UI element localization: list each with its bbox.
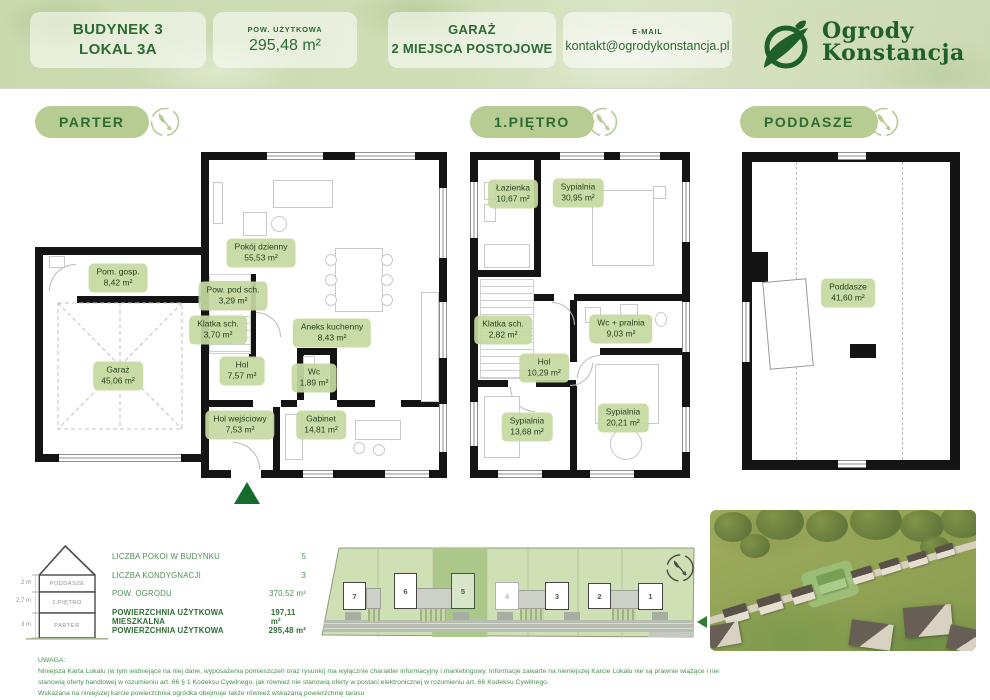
- siteplan-house-4: 4: [495, 582, 519, 610]
- foreground-house: [903, 604, 953, 638]
- bathtub: [484, 244, 530, 268]
- stat-label: POWIERZCHNIA UŻYTKOWA: [112, 626, 224, 635]
- door-arc: [233, 442, 260, 469]
- desk: [355, 420, 401, 440]
- header-box-garage: GARAŻ 2 MIEJSCA POSTOJOWE: [388, 12, 556, 68]
- room-label: Aneks kuchenny8,43 m²: [293, 319, 371, 348]
- door-arc: [49, 264, 76, 291]
- window: [439, 404, 447, 452]
- rendered-house: [850, 565, 874, 585]
- rendered-house: [756, 593, 784, 615]
- section-floor-label: PARTER: [54, 623, 79, 629]
- siteplan-pad: [345, 612, 361, 620]
- stat-value: 5: [301, 552, 306, 561]
- parking-spots-label: 2 MIEJSCA POSTOJOWE: [391, 40, 552, 59]
- chair: [325, 294, 337, 306]
- nightstand: [653, 186, 666, 199]
- window: [590, 470, 634, 478]
- window: [385, 470, 429, 478]
- chair: [381, 294, 393, 306]
- site-plan: 7 6 5 4 3 2 1: [312, 546, 712, 646]
- siteplan-pad: [497, 612, 513, 620]
- window: [355, 152, 415, 160]
- siteplan-pad: [564, 612, 580, 620]
- chair: [353, 442, 365, 454]
- usable-area-value: 295,48 m²: [249, 37, 321, 55]
- room-label: Garaż45,06 m²: [93, 362, 143, 391]
- tree: [940, 510, 976, 538]
- section-floor-label: 1.PIĘTRO: [52, 600, 82, 606]
- rug: [610, 428, 642, 460]
- siteplan-driveway: [368, 607, 380, 621]
- coffee-table: [271, 216, 287, 232]
- room-label: Pow. pod sch.3,29 m²: [199, 282, 268, 311]
- wall: [574, 294, 682, 301]
- floor-height-label: 3 m: [21, 622, 31, 628]
- siteplan-house-7: 7: [343, 582, 366, 610]
- tree: [850, 510, 902, 540]
- window: [470, 402, 478, 446]
- compass-icon: [866, 103, 902, 141]
- siteplan-pad: [652, 612, 668, 620]
- siteplan-garage: [415, 588, 453, 609]
- floor-plan-pietro: Łazienka10,67 m² Sypialnia30,95 m² Klatk…: [470, 152, 690, 478]
- floor-height-label: 2 m: [21, 580, 31, 586]
- tree: [740, 534, 770, 558]
- siteplan-house-2: 2: [588, 583, 611, 609]
- wall: [570, 386, 577, 470]
- door-arc: [570, 363, 593, 386]
- window: [682, 302, 690, 352]
- rendered-house: [879, 557, 902, 575]
- siteplan-house-6: 6: [394, 573, 417, 609]
- window: [742, 302, 750, 362]
- logo-icon: [757, 13, 817, 75]
- window: [470, 182, 478, 238]
- karta-lokalu-page: BUDYNEK 3 LOKAL 3A POW. UŻYTKOWA 295,48 …: [0, 0, 990, 700]
- usable-area-label: POW. UŻYTKOWA: [248, 25, 323, 34]
- room-label: Wc1,89 m²: [292, 364, 337, 393]
- chair: [325, 254, 337, 266]
- siteplan-driveway: [420, 607, 446, 621]
- note-line: Wskazana na niniejszej karcie powierzchn…: [38, 689, 968, 700]
- entrance-door-gap: [231, 470, 261, 478]
- window: [682, 182, 690, 242]
- room-label: Hol wejściowy7,53 m²: [205, 411, 274, 440]
- entrance-marker: [234, 482, 260, 504]
- toilet: [655, 312, 667, 327]
- siteplan-house-1: 1: [638, 583, 663, 610]
- tv-cabinet: [213, 182, 223, 224]
- floor-height-label: 2,7 m: [16, 598, 31, 604]
- window: [498, 470, 542, 478]
- window: [838, 460, 866, 468]
- stat-label: POWIERZCHNIA UŻYTKOWA MIESZKALNA: [112, 608, 271, 626]
- armchair: [243, 212, 267, 236]
- window: [682, 407, 690, 452]
- wall: [570, 348, 577, 355]
- foreground-house: [848, 619, 893, 651]
- wall: [35, 247, 205, 255]
- wall: [35, 247, 43, 462]
- window: [439, 302, 447, 358]
- sofa: [273, 180, 333, 208]
- garage-label: GARAŻ: [448, 21, 496, 40]
- stat-label: LICZBA KONDYGNACJI: [112, 571, 201, 580]
- chimney: [850, 344, 876, 358]
- roof-slope-line: [902, 162, 903, 460]
- room-label: Hol10,29 m²: [519, 354, 569, 383]
- logo-wordmark: Ogrody Konstancja: [822, 20, 965, 65]
- floor-plan-poddasze: Poddasze41,60 m²: [742, 152, 960, 470]
- wall: [534, 160, 541, 277]
- email-address[interactable]: kontakt@ogrodykonstancja.pl: [565, 39, 729, 53]
- siteplan-house-3: 3: [545, 582, 569, 610]
- siteplan-garage: [609, 590, 639, 609]
- chair: [325, 274, 337, 286]
- header-box-email: E-MAIL kontakt@ogrodykonstancja.pl: [563, 12, 732, 68]
- foreground-house: [710, 621, 742, 649]
- stat-row: POWIERZCHNIA UŻYTKOWA MIESZKALNA 197,11 …: [112, 608, 306, 627]
- siteplan-pad: [453, 612, 469, 620]
- section-title-poddasze: PODDASZE: [740, 106, 878, 138]
- wall: [281, 400, 297, 407]
- room-label: Pokój dzienny55,53 m²: [227, 239, 296, 268]
- tree: [806, 510, 848, 542]
- window: [439, 188, 447, 258]
- summary-stats: LICZBA POKOI W BUDYNKU 5 LICZBA KONDYGNA…: [112, 552, 306, 645]
- window: [838, 152, 866, 160]
- siteplan-house-5-selected: 5: [451, 573, 475, 609]
- window: [303, 470, 333, 478]
- section-floor-label: PODDASZE: [49, 581, 84, 587]
- wall: [752, 252, 768, 282]
- room-label: Wc + pralnia9,03 m²: [589, 315, 652, 344]
- compass-icon: [585, 103, 621, 141]
- building-number: BUDYNEK 3: [73, 20, 163, 40]
- stat-label: POW. OGRODU: [112, 589, 172, 598]
- stat-row: LICZBA POKOI W BUDYNKU 5: [112, 552, 306, 571]
- stat-label: LICZBA POKOI W BUDYNKU: [112, 552, 220, 561]
- aerial-photo: [710, 510, 976, 651]
- chair: [373, 444, 385, 456]
- window: [560, 152, 604, 160]
- floor-plan-parter: Pokój dzienny55,53 m² Pow. pod sch.3,29 …: [35, 152, 447, 482]
- window: [267, 152, 323, 160]
- garage-door: [59, 454, 181, 462]
- room-label: Pom. gosp.8,42 m²: [89, 264, 148, 293]
- dining-table: [335, 248, 383, 312]
- wall: [209, 400, 253, 407]
- chair: [381, 274, 393, 286]
- section-title-parter: PARTER: [35, 106, 149, 138]
- wall: [600, 348, 682, 355]
- stat-row: LICZBA KONDYGNACJI 3: [112, 571, 306, 590]
- siteplan-garage: [366, 588, 381, 609]
- unit-number: LOKAL 3A: [79, 40, 157, 60]
- chair: [381, 254, 393, 266]
- stat-value: 197,11 m²: [271, 608, 306, 626]
- note-line: stanowią oferty handlowej w rozumieniu a…: [38, 678, 968, 689]
- header-box-area: POW. UŻYTKOWA 295,48 m²: [213, 12, 357, 68]
- window: [620, 152, 660, 160]
- stat-row: POW. OGRODU 370,52 m²: [112, 589, 306, 608]
- room-label: Hol7,57 m²: [220, 357, 265, 386]
- logo-line1: Ogrody: [822, 20, 965, 42]
- wall: [950, 152, 960, 470]
- room-label: Sypialnia20,21 m²: [598, 404, 649, 433]
- email-label: E-MAIL: [632, 27, 663, 36]
- rendered-house: [907, 551, 929, 569]
- wall: [478, 380, 508, 387]
- stat-row: POWIERZCHNIA UŻYTKOWA 295,48 m²: [112, 626, 306, 645]
- siteplan-garage: [517, 590, 547, 609]
- stat-value: 3: [301, 571, 306, 580]
- note-title: UWAGA:: [38, 656, 968, 667]
- room-label: Klatka sch.2,82 m²: [474, 316, 532, 345]
- kitchen-counter: [421, 292, 439, 402]
- wall: [337, 400, 375, 407]
- stair-opening: [762, 278, 814, 370]
- foreground-house: [946, 624, 976, 651]
- utility-fixture: [49, 256, 65, 268]
- stat-value: 295,48 m²: [269, 626, 306, 635]
- room-label: Sypialnia13,68 m²: [502, 413, 553, 442]
- note-line: Niniejsza Karta Lokalu (w tym widniejące…: [38, 667, 968, 678]
- room-label: Gabinet14,81 m²: [296, 411, 346, 440]
- legal-note: UWAGA: Niniejsza Karta Lokalu (w tym wid…: [38, 656, 968, 700]
- compass-icon: [147, 103, 183, 141]
- room-label: Poddasze41,60 m²: [821, 279, 875, 308]
- wall: [478, 270, 541, 277]
- stat-value: 370,52 m²: [269, 589, 306, 598]
- wall: [534, 294, 554, 301]
- door-arc: [256, 312, 281, 337]
- page-header: BUDYNEK 3 LOKAL 3A POW. UŻYTKOWA 295,48 …: [0, 0, 990, 89]
- logo-line2: Konstancja: [822, 42, 965, 64]
- room-label: Klatka sch.3,70 m²: [189, 316, 247, 345]
- section-title-pietro: 1.PIĘTRO: [470, 106, 594, 138]
- room-label: Sypialnia30,95 m²: [553, 179, 604, 208]
- header-box-building: BUDYNEK 3 LOKAL 3A: [30, 12, 206, 68]
- room-label: Łazienka10,67 m²: [488, 180, 538, 209]
